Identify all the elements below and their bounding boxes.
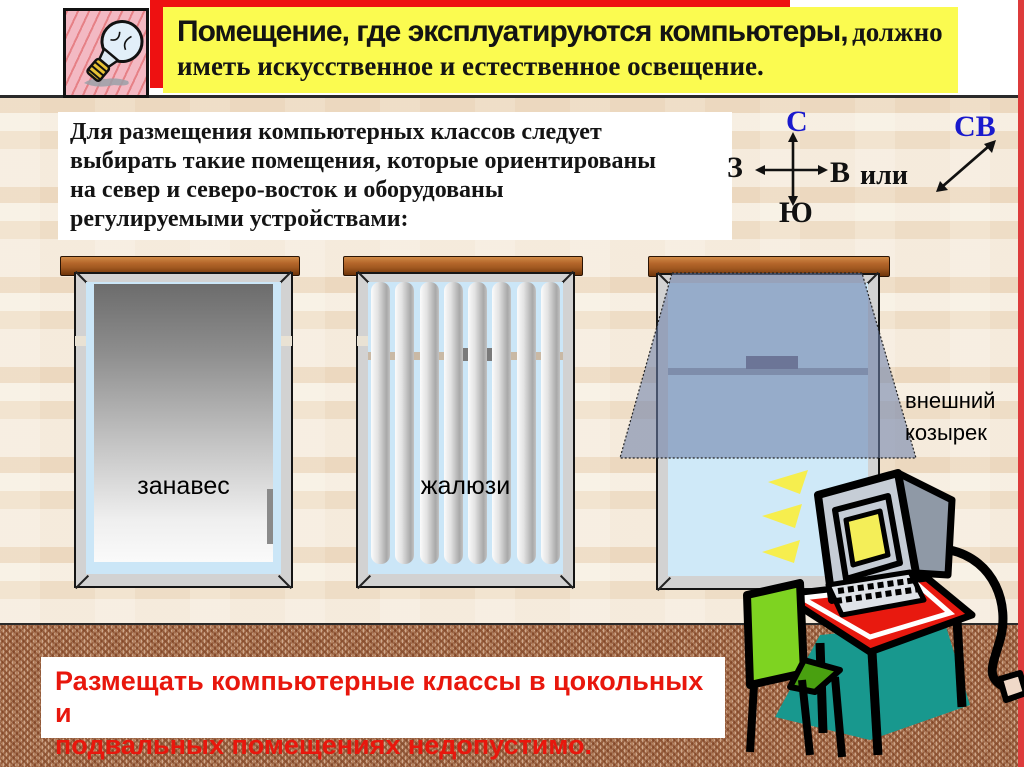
warning-text-box: Размещать компьютерные классы в цокольны… [41,657,725,738]
presentation-slide: Помещение, где эксплуатируются компьютер… [0,0,1024,767]
or-label: или [860,160,908,192]
lightbulb-icon [63,8,149,98]
compass-west-label: З [727,151,743,185]
frame-bevel [560,575,574,589]
frame-bevel [278,575,292,589]
window-curtain [74,272,293,588]
computer-desk-illustration [720,455,1024,767]
window-glass [368,282,563,574]
external-canopy-overlay [615,265,920,465]
blind-slat [395,282,414,564]
frame-bevel [357,575,371,589]
window-glass [86,282,281,574]
wall-top-divider [0,95,1024,98]
blind-slat [468,282,487,564]
curtain [94,284,273,562]
title-banner: Помещение, где эксплуатируются компьютер… [163,7,958,93]
warning-line: подвальных помещениях недопустимо. [55,729,711,761]
blind-slat [541,282,560,564]
blinds-label: жалюзи [356,472,575,501]
compass-cross-arrows [750,128,830,212]
title-part-sans: Помещение, где эксплуатируются компьютер… [177,15,848,48]
window-blinds [356,272,575,588]
northeast-diagonal-arrow [932,136,1000,196]
title-part-serif: должно [852,17,943,47]
info-line: на север и северо-восток и оборудованы [70,176,720,205]
curtain-label: занавес [74,472,293,501]
info-line: выбирать такие помещения, которые ориент… [70,147,720,176]
blind-slat [492,282,511,564]
frame-bevel [657,577,671,591]
blind-slat [517,282,536,564]
blind-slat [444,282,463,564]
info-text-box: Для размещения компьютерных классов след… [58,112,732,240]
blind-slat [371,282,390,564]
vertical-blinds [371,282,560,564]
canopy-label: внешний козырек [905,385,1017,449]
title-line2: иметь искусственное и естественное освещ… [177,51,948,82]
compass-east-label: В [830,156,850,190]
info-line: регулируемыми устройствами: [70,205,720,234]
warning-line: Размещать компьютерные классы в цокольны… [55,665,711,729]
frame-notch [280,336,292,346]
info-line: Для размещения компьютерных классов след… [70,118,720,147]
blind-slat [420,282,439,564]
frame-bevel [75,575,89,589]
